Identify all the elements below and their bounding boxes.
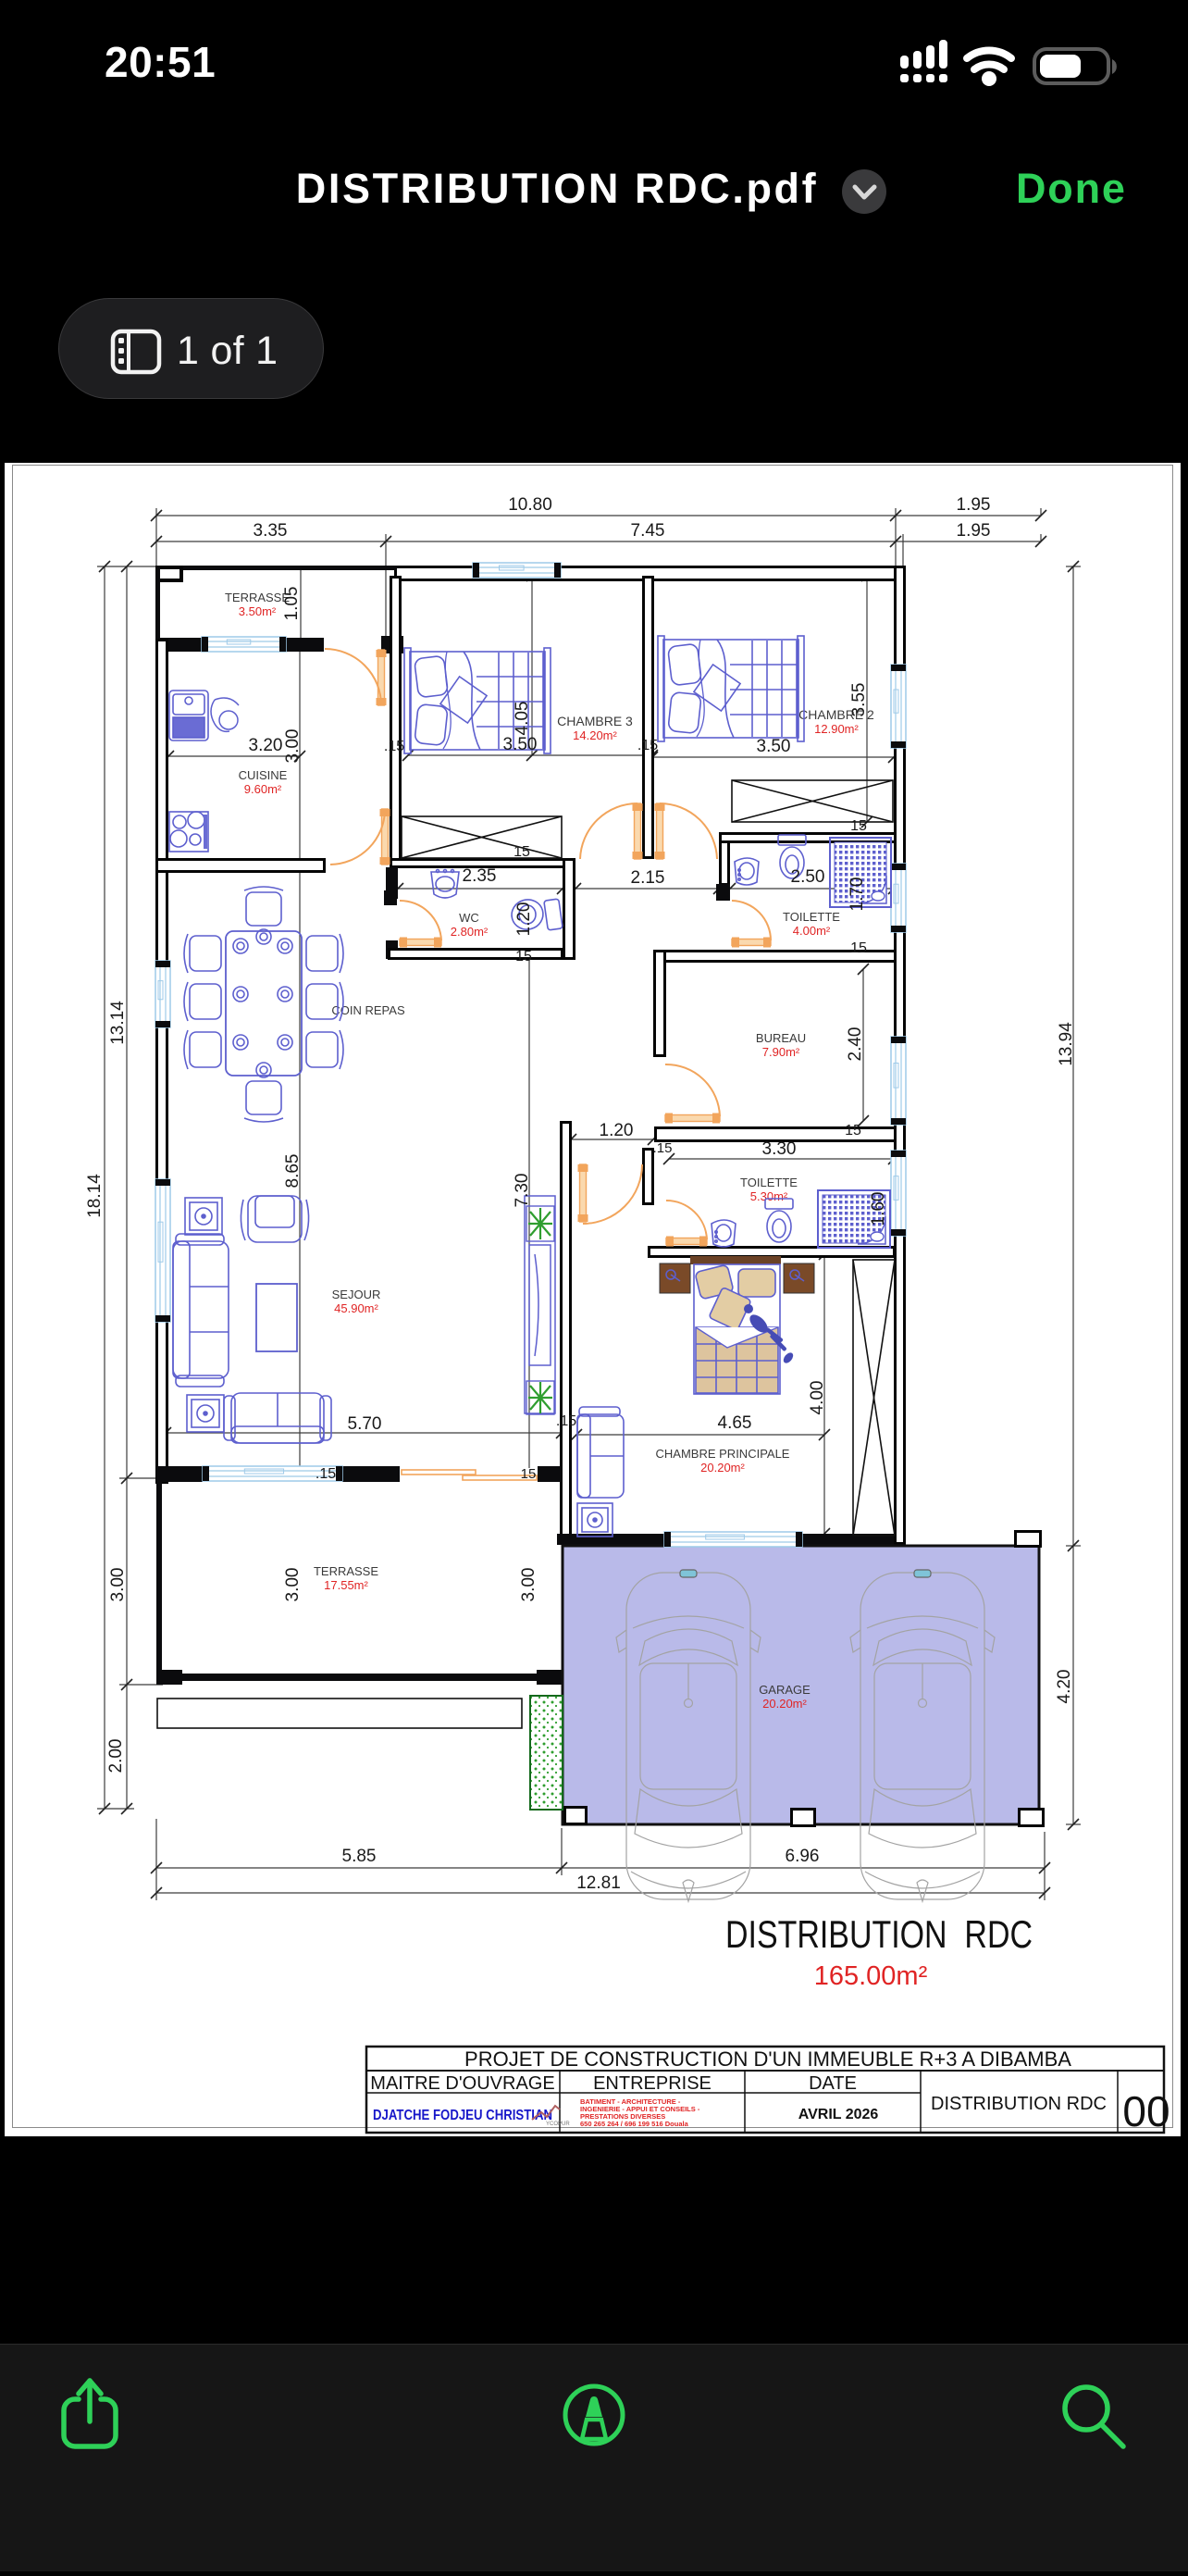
svg-text:18.14: 18.14	[85, 1174, 105, 1218]
svg-text:3.50m²: 3.50m²	[239, 604, 277, 618]
svg-text:MAITRE D'OUVRAGE: MAITRE D'OUVRAGE	[370, 2073, 554, 2094]
svg-text:ENTREPRISE: ENTREPRISE	[593, 2073, 712, 2094]
svg-text:5.85: 5.85	[342, 1847, 377, 1866]
svg-text:CHAMBRE PRINCIPALE: CHAMBRE PRINCIPALE	[656, 1447, 790, 1461]
svg-text:GARAGE: GARAGE	[759, 1683, 811, 1697]
svg-text:15: 15	[850, 940, 867, 956]
svg-text:7.45: 7.45	[631, 521, 665, 541]
svg-text:1.60: 1.60	[869, 1192, 888, 1226]
svg-text:20.20m²: 20.20m²	[700, 1461, 745, 1475]
svg-text:DJATCHE FODJEU CHRISTIAN: DJATCHE FODJEU CHRISTIAN	[373, 2108, 552, 2123]
svg-text:.15: .15	[556, 1413, 576, 1429]
svg-text:2.00: 2.00	[106, 1739, 126, 1773]
svg-text:TOILETTE: TOILETTE	[740, 1176, 798, 1189]
svg-text:2.15: 2.15	[631, 868, 665, 888]
svg-text:3.20: 3.20	[249, 736, 283, 755]
svg-text:2.80m²: 2.80m²	[451, 925, 489, 939]
svg-text:3.50: 3.50	[757, 737, 791, 756]
svg-text:3.00: 3.00	[519, 1568, 538, 1602]
svg-text:SEJOUR: SEJOUR	[332, 1288, 381, 1301]
svg-text:.15: .15	[316, 1466, 336, 1482]
svg-text:TOILETTE: TOILETTE	[783, 910, 840, 924]
svg-text:4.05: 4.05	[513, 702, 532, 736]
svg-text:.15: .15	[637, 738, 658, 753]
svg-text:4.65: 4.65	[718, 1413, 752, 1433]
svg-text:4.00m²: 4.00m²	[793, 924, 831, 938]
svg-text:165.00m²: 165.00m²	[814, 1961, 928, 1991]
svg-text:2.40: 2.40	[846, 1027, 865, 1062]
svg-text:DISTRIBUTION RDC: DISTRIBUTION RDC	[931, 2094, 1107, 2114]
svg-text:WC: WC	[459, 911, 479, 925]
svg-text:2.50: 2.50	[791, 867, 825, 887]
svg-text:17.55m²: 17.55m²	[324, 1578, 368, 1592]
svg-text:3.55: 3.55	[849, 683, 869, 717]
svg-text:6.96: 6.96	[786, 1847, 820, 1866]
svg-text:4.00: 4.00	[808, 1381, 827, 1415]
svg-text:3.30: 3.30	[762, 1139, 797, 1159]
svg-text:1.70: 1.70	[848, 877, 867, 912]
svg-text:15: 15	[845, 1123, 861, 1139]
svg-text:5.30m²: 5.30m²	[750, 1189, 788, 1203]
svg-text:PROJET DE CONSTRUCTION D'UN IM: PROJET DE CONSTRUCTION D'UN IMMEUBLE R+3…	[464, 2047, 1071, 2071]
svg-text:DISTRIBUTION RDC: DISTRIBUTION RDC	[725, 1912, 1033, 1956]
svg-text:45.90m²: 45.90m²	[334, 1301, 378, 1315]
svg-text:2.35: 2.35	[463, 866, 497, 886]
svg-text:14.20m²: 14.20m²	[573, 728, 617, 742]
svg-text:7.90m²: 7.90m²	[762, 1045, 800, 1059]
svg-text:9.60m²: 9.60m²	[244, 782, 282, 796]
svg-text:7.30: 7.30	[513, 1174, 532, 1208]
svg-text:15: 15	[514, 844, 530, 860]
svg-text:15: 15	[521, 1466, 537, 1482]
svg-text:650 265 264 / 696 199 516 Dou: 650 265 264 / 696 199 516 Douala	[580, 2120, 689, 2128]
svg-text:DATE: DATE	[809, 2073, 857, 2094]
svg-text:12.90m²: 12.90m²	[814, 722, 859, 736]
svg-text:CHAMBRE 3: CHAMBRE 3	[557, 714, 633, 728]
svg-text:.15: .15	[384, 739, 404, 754]
svg-text:13.14: 13.14	[108, 1001, 128, 1045]
svg-text:3.00: 3.00	[283, 729, 303, 764]
svg-text:.15: .15	[653, 1140, 673, 1156]
svg-text:4.20: 4.20	[1055, 1670, 1074, 1704]
svg-text:AVRIL 2026: AVRIL 2026	[798, 2107, 879, 2122]
svg-text:3.35: 3.35	[254, 521, 288, 541]
svg-text:8.65: 8.65	[283, 1154, 303, 1188]
svg-text:TERRASSE: TERRASSE	[225, 591, 290, 604]
svg-text:BUREAU: BUREAU	[756, 1031, 806, 1045]
svg-text:1.95: 1.95	[957, 495, 991, 515]
svg-text:1.20: 1.20	[600, 1121, 634, 1140]
svg-text:1.95: 1.95	[957, 521, 991, 541]
svg-text:15: 15	[515, 949, 532, 964]
svg-text:YCOPUR: YCOPUR	[546, 2122, 570, 2127]
svg-text:00: 00	[1122, 2087, 1169, 2135]
svg-text:1.20: 1.20	[514, 902, 534, 937]
svg-text:5.70: 5.70	[348, 1414, 382, 1434]
svg-text:10.80: 10.80	[508, 495, 552, 515]
svg-text:CUISINE: CUISINE	[239, 768, 288, 782]
svg-text:3.00: 3.00	[283, 1568, 303, 1602]
svg-text:12.81: 12.81	[576, 1873, 621, 1893]
svg-text:1.05: 1.05	[282, 587, 302, 621]
svg-text:3.00: 3.00	[108, 1568, 128, 1602]
svg-text:20.20m²: 20.20m²	[762, 1697, 807, 1711]
svg-text:15: 15	[850, 818, 867, 834]
svg-text:3.50: 3.50	[503, 735, 538, 754]
svg-text:TERRASSE: TERRASSE	[314, 1564, 378, 1578]
svg-text:13.94: 13.94	[1057, 1022, 1076, 1066]
